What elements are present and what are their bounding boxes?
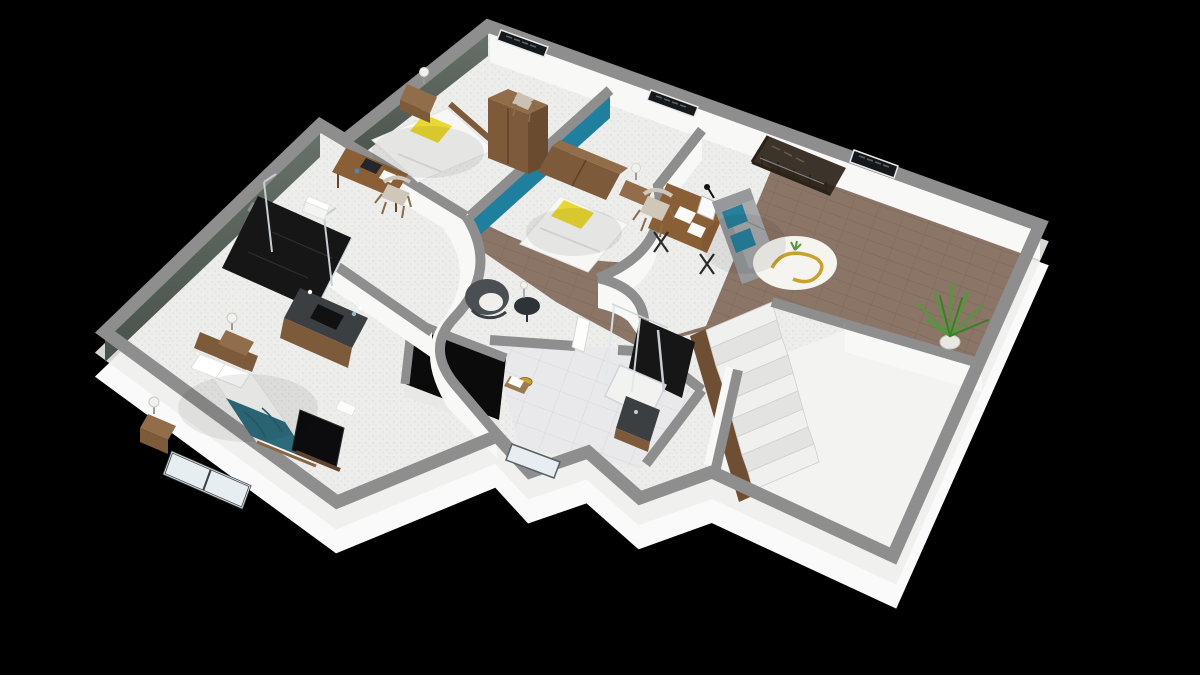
nook-lamp [521, 282, 528, 289]
bed1-lamp [420, 68, 429, 77]
master-lamp-left [149, 397, 159, 407]
floor-plan-render [0, 0, 1200, 675]
desk1-blue-item [355, 169, 360, 174]
master-lamp-right [227, 313, 237, 323]
bed2-lamp [632, 164, 641, 173]
